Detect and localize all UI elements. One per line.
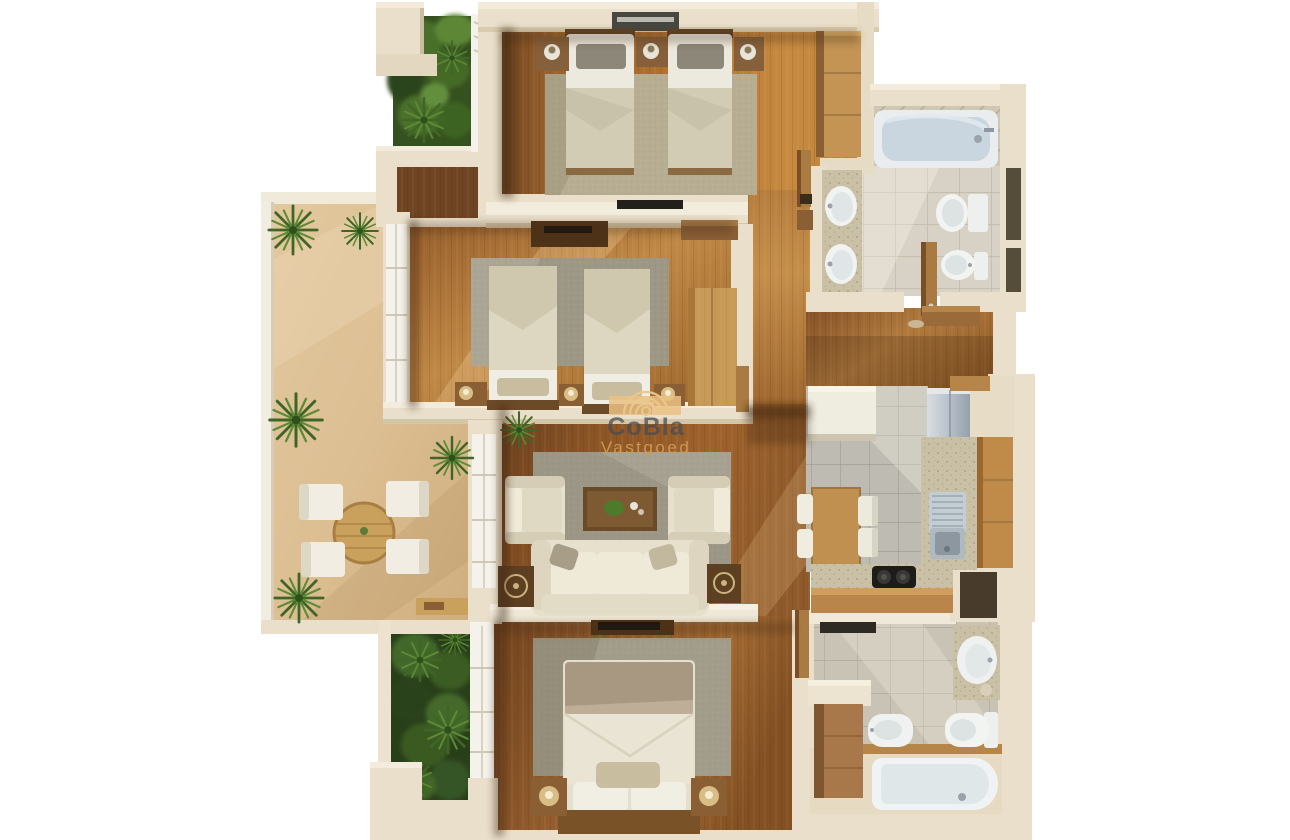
- svg-text:Vastgoed: Vastgoed: [601, 438, 692, 457]
- svg-text:CoBIa: CoBIa: [607, 413, 684, 441]
